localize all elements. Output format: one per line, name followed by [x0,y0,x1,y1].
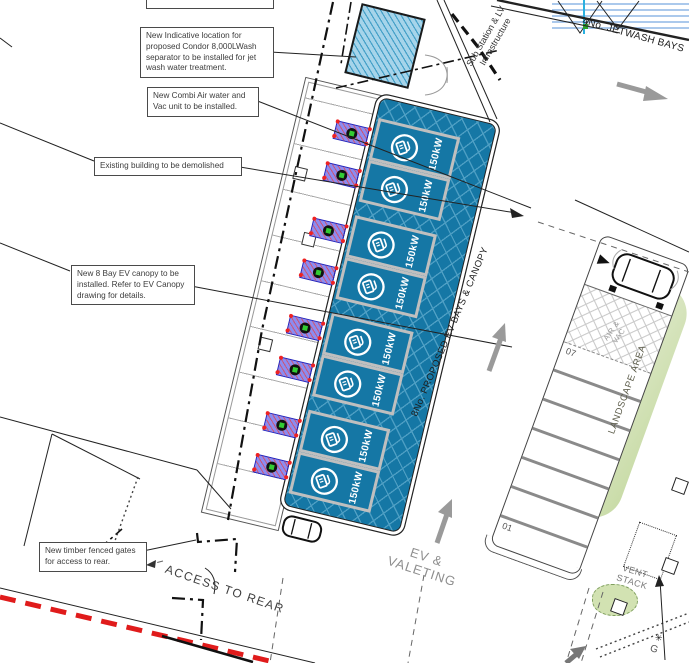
access-to-rear-label: ACCESS TO REAR [163,562,286,616]
ev-charger-icon [361,225,402,266]
annotation-condor-separator: New Indicative location for proposed Con… [140,27,274,78]
ev-charger-icon [327,364,368,405]
bay-power-label: 150kW [347,470,365,505]
site-plan-canvas: 150kW 150kW 15 [0,0,689,663]
air-vac-label: AIR & VAC [593,308,636,359]
annotation-demolish: Existing building to be demolished [94,157,242,176]
building-room-marker [257,337,273,353]
parking-row: AIR & VAC 07 01 [489,234,689,576]
flow-arrowhead [492,323,506,342]
annotation-combi-air-vac: New Combi Air water and Vac unit to be i… [147,87,259,117]
building-room-marker [292,166,308,182]
bay-power-label: 150kW [404,234,422,269]
ev-charger-icon [351,266,392,307]
bay-power-label: 150kW [427,136,445,171]
ev-charger-icon [337,322,378,363]
gas-marker-label: G [648,643,659,656]
bay-power-label: 150kW [417,178,435,213]
flow-arrow-east [617,84,650,93]
one-way-arrow-icon [597,254,612,268]
annotation-partial: to be installed [146,0,274,9]
annotation-timber-gates: New timber fenced gates for access to re… [39,542,147,572]
ev-charger-icon [374,169,415,210]
leader-arrowhead [510,208,524,218]
ev-charger-icon [384,127,425,168]
ev-charger-icon [314,419,355,460]
substation-label: Sub Station & LV Infrastructure [458,0,523,85]
bollard-post [661,557,679,575]
flow-arrowhead [438,499,452,518]
bay-power-label: 150kW [380,331,398,366]
annotation-ev-canopy: New 8 Bay EV canopy to be installed. Ref… [71,265,195,305]
bay-power-label: 150kW [394,275,412,310]
bay-power-label: 150kW [357,428,375,463]
flow-arrowhead [570,646,586,659]
condor-separator-tank [344,3,425,89]
flow-arrow-canopy [489,338,501,371]
gate-arrowhead [146,560,156,568]
flow-arrow-south [566,652,579,663]
ev-valeting-label: EV & VALETING [376,537,473,594]
survey-station-icon: ✳ [655,633,663,644]
ev-charger-icon [304,461,345,502]
bollard-post [671,477,689,495]
separator-door-arcs [425,55,447,95]
jetwash-bays-label: 4No. JETWASH BAYS [581,16,685,55]
flow-arrowhead [643,86,668,101]
bay-power-label: 150kW [370,373,388,408]
car-icon [278,511,327,547]
flow-arrow-valeting [437,514,447,543]
